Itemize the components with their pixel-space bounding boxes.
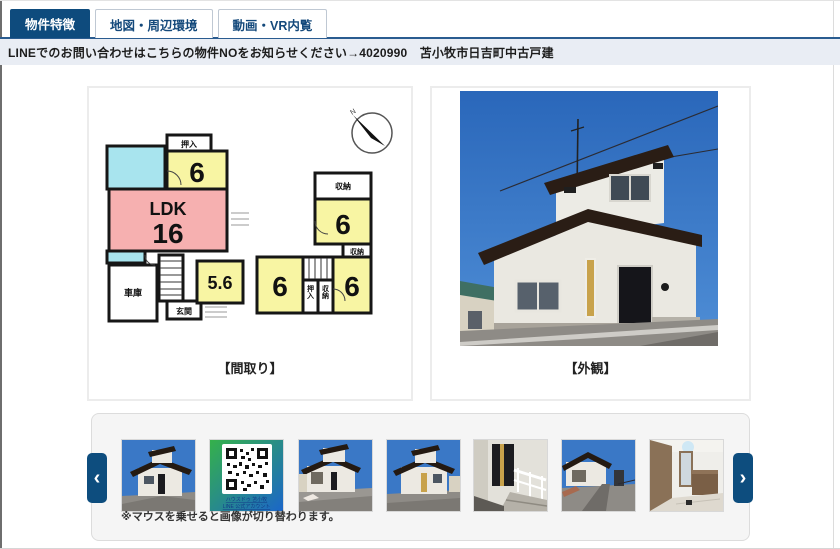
compass-n-label: N xyxy=(349,108,357,117)
tab-property-features[interactable]: 物件特徴 xyxy=(10,9,90,38)
label-storage-2f-top: 収納 xyxy=(335,181,351,191)
label-room6-2f-c: 6 xyxy=(344,271,360,302)
thumbnail-interior[interactable] xyxy=(649,439,724,512)
thumbnail-exterior-1[interactable] xyxy=(121,439,196,512)
label-ldk-size: 16 xyxy=(152,218,183,249)
page-right-edge xyxy=(833,1,834,549)
label-room6-2f-a: 6 xyxy=(335,209,351,240)
tab-map-surroundings[interactable]: 地図・周辺環境 xyxy=(95,9,213,38)
thumbnail-porch[interactable] xyxy=(473,439,548,512)
thumbnail-exterior-2[interactable] xyxy=(298,439,373,512)
chevron-left-icon: ‹ xyxy=(94,468,101,488)
thumbnail-street[interactable] xyxy=(561,439,636,512)
thumbnail-carousel: ハウスドゥ 苫小牧 LINE 公式アカウント xyxy=(91,413,750,541)
exterior-photo-drawing xyxy=(460,91,718,346)
exterior-photo[interactable] xyxy=(460,91,718,346)
label-storage-2f-mid: 収納 xyxy=(321,284,329,300)
floorplan-figure: 押入 6 LDK 16 車庫 玄関 5.6 収納 6 収納 6 押入 収納 6 … xyxy=(87,86,413,401)
property-detail-page: 物件特徴 地図・周辺環境 動画・VR内覧 LINEでのお問い合わせはこちらの物件… xyxy=(0,0,840,549)
qr-caption-line1: ハウスドゥ 苫小牧 xyxy=(226,496,267,503)
window-left-edge xyxy=(0,1,2,549)
compass-icon: N xyxy=(349,108,392,153)
label-storage-2f-small: 収納 xyxy=(350,247,364,256)
label-ldk: LDK xyxy=(150,199,187,219)
chevron-right-icon: › xyxy=(740,468,747,488)
floorplan-drawing: 押入 6 LDK 16 車庫 玄関 5.6 収納 6 収納 6 押入 収納 6 … xyxy=(89,93,411,351)
carousel-prev-button[interactable]: ‹ xyxy=(87,453,107,503)
thumbnail-qr-code[interactable]: ハウスドゥ 苫小牧 LINE 公式アカウント xyxy=(209,439,284,512)
label-room6-1f: 6 xyxy=(189,157,205,188)
label-room56: 5.6 xyxy=(207,273,232,293)
exterior-figure: 【外観】 xyxy=(430,86,751,401)
floorplan-image[interactable]: 押入 6 LDK 16 車庫 玄関 5.6 収納 6 収納 6 押入 収納 6 … xyxy=(89,93,411,351)
tab-video-vr[interactable]: 動画・VR内覧 xyxy=(218,9,328,38)
thumbnail-exterior-3[interactable] xyxy=(386,439,461,512)
label-garage: 車庫 xyxy=(124,287,142,298)
exterior-caption: 【外観】 xyxy=(432,358,749,377)
notice-text: LINEでのお問い合わせはこちらの物件NOをお知らせください→4020990 苫… xyxy=(8,44,554,61)
tabbar: 物件特徴 地図・周辺環境 動画・VR内覧 xyxy=(10,9,327,38)
floorplan-caption: 【間取り】 xyxy=(89,358,411,377)
carousel-next-button[interactable]: › xyxy=(733,453,753,503)
carousel-hover-note: ※マウスを乗せると画像が切り替わります。 xyxy=(121,508,340,524)
label-oshiire-1f: 押入 xyxy=(181,139,197,149)
label-room6-2f-b: 6 xyxy=(272,271,288,302)
line-inquiry-notice: LINEでのお問い合わせはこちらの物件NOをお知らせください→4020990 苫… xyxy=(0,39,840,65)
label-entrance: 玄関 xyxy=(176,306,192,316)
